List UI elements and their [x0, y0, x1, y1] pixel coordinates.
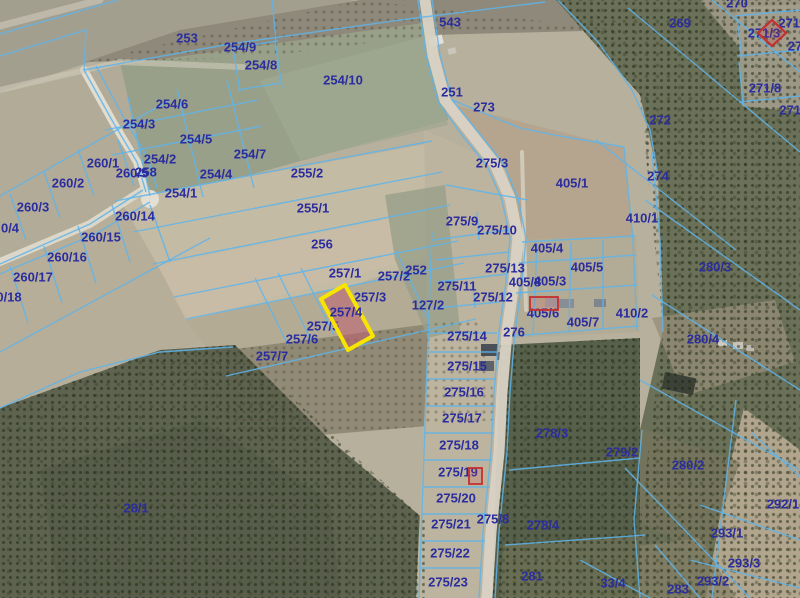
- parcel-label-257-4: 257/4: [330, 305, 363, 320]
- cadastral-map-viewport[interactable]: 253254/9254/8254/10543251273270269271/27…: [0, 0, 800, 598]
- selected-parcel-label-layer: 257/4: [0, 0, 800, 598]
